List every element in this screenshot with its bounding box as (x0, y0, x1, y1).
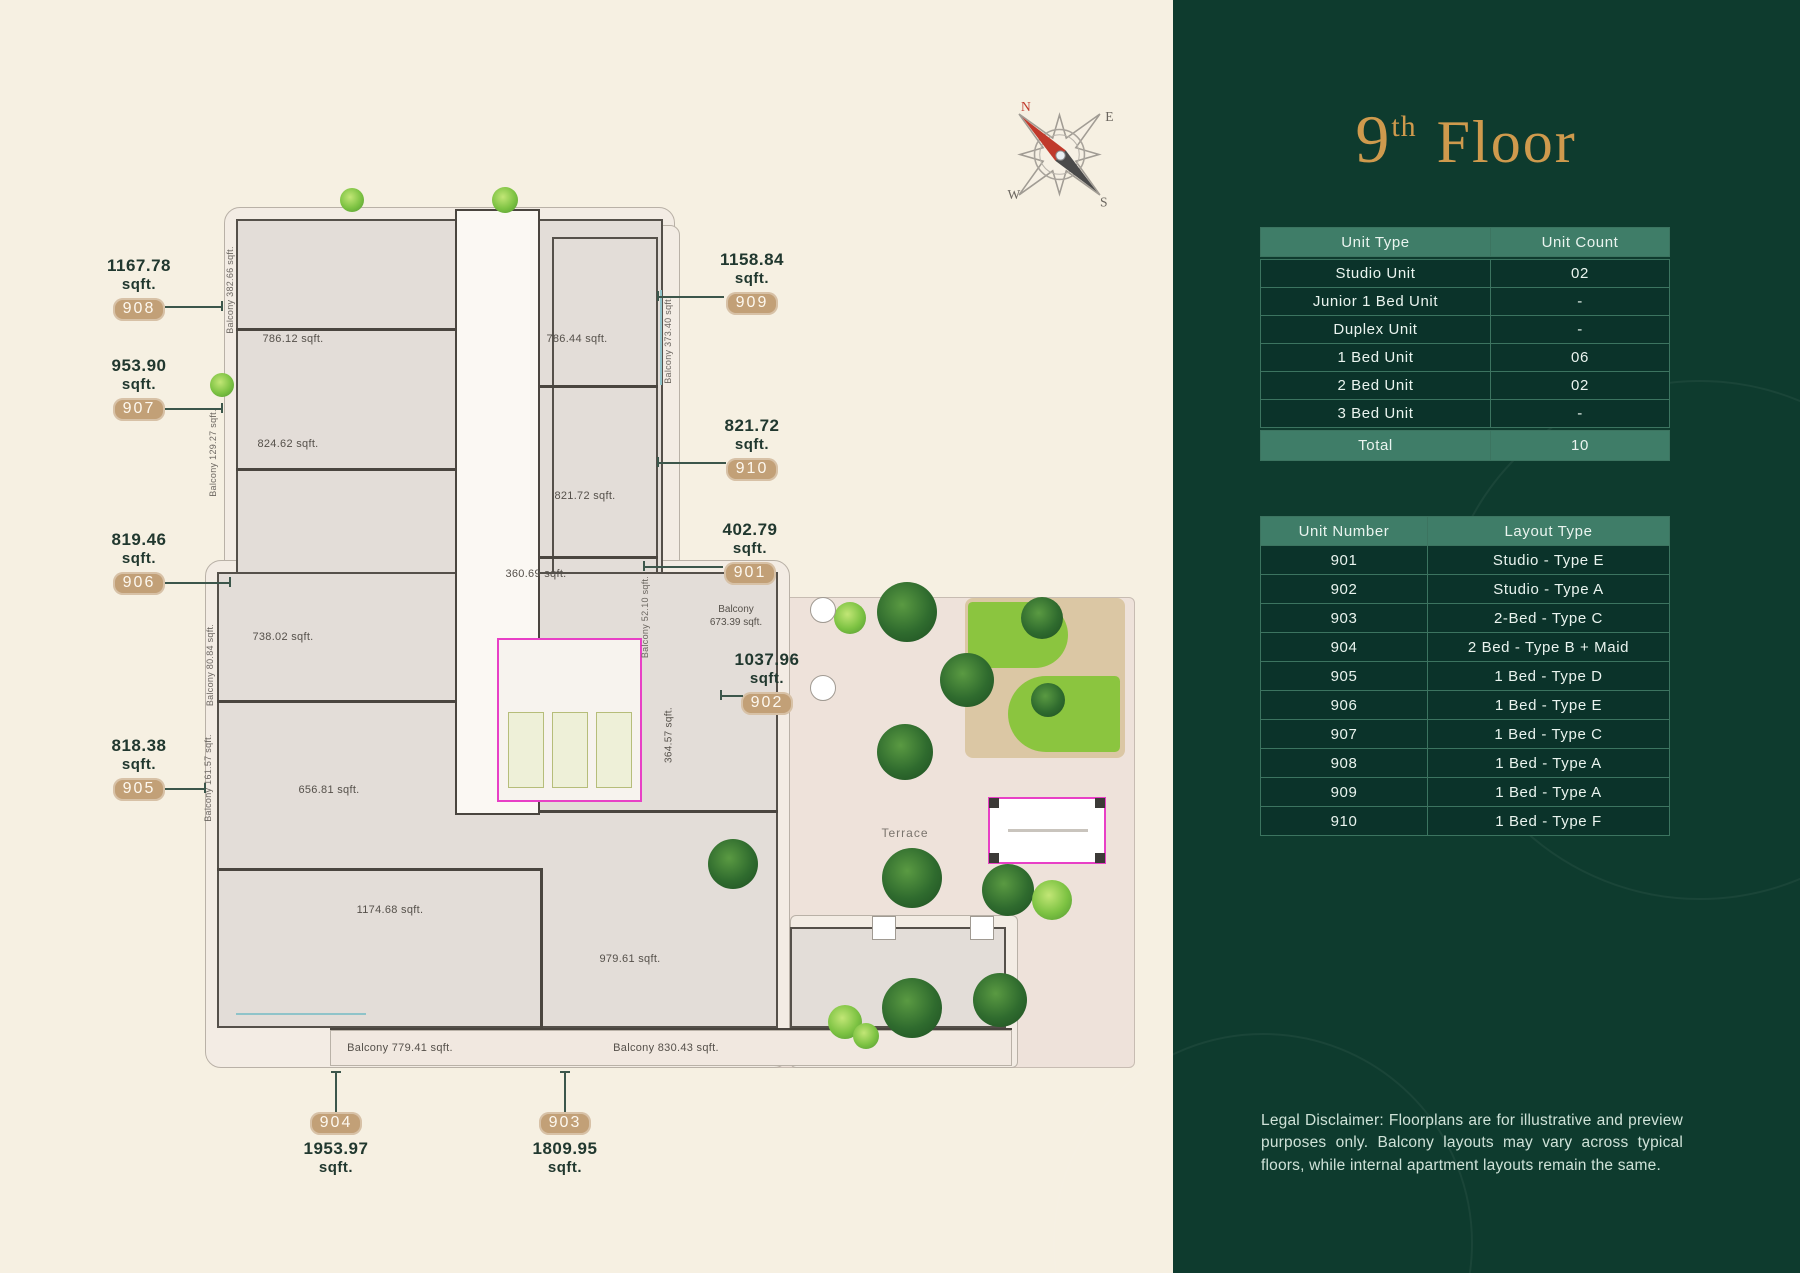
unit-area-label: 360.69 sqft. (505, 568, 566, 580)
callout-area: 1167.78 (77, 256, 201, 276)
leader-tick (204, 783, 206, 793)
leader-line (165, 788, 205, 790)
balcony-label: Balcony 673.39 sqft. (710, 603, 762, 629)
table-row: 3 Bed Unit - (1261, 400, 1671, 428)
unit-badge: 910 (726, 458, 779, 481)
layout-type-cell: Studio - Type E (1427, 545, 1670, 575)
leader-line (335, 1072, 337, 1112)
leader-tick (657, 291, 659, 301)
floorplan-page: 786.12 sqft. 786.44 sqft. 824.62 sqft. 8… (0, 0, 1800, 1273)
leader-tick (560, 1071, 570, 1073)
bush (492, 187, 518, 213)
table-header-row: Unit Number Layout Type (1261, 517, 1671, 546)
table-row: Studio Unit 02 (1261, 260, 1671, 288)
wall (540, 556, 658, 559)
unit-number-cell: 902 (1260, 574, 1428, 604)
unit-area-label: 786.44 sqft. (546, 333, 607, 345)
unit-type-cell: Studio Unit (1260, 259, 1491, 288)
layout-type-cell: 2 Bed - Type B + Maid (1427, 632, 1670, 662)
page-title: 9th Floor (1261, 100, 1671, 179)
wall (217, 700, 455, 703)
compass-west: W (1007, 187, 1020, 202)
table-line (1008, 829, 1088, 832)
callout-area: 1953.97 (274, 1139, 398, 1159)
unit-number-cell: 906 (1260, 690, 1428, 720)
callout-area: 1809.95 (503, 1139, 627, 1159)
balcony-glass (660, 290, 662, 385)
unit-area-label: 824.62 sqft. (257, 438, 318, 450)
core-bay (552, 712, 588, 788)
info-sidebar: 9th Floor Unit Type Unit Count Studio Un… (1173, 0, 1800, 1273)
unit-area-label: 786.12 sqft. (262, 333, 323, 345)
callout-sqft: sqft. (77, 276, 201, 293)
compass-south: S (1100, 194, 1108, 209)
callout-sqft: sqft. (77, 756, 201, 773)
unit-callout-902: 1037.96 sqft. 902 (705, 650, 829, 715)
table-row: 905 1 Bed - Type D (1261, 662, 1671, 691)
unit-badge: 905 (113, 778, 166, 801)
unit-count-cell: - (1490, 315, 1670, 344)
table-row: 908 1 Bed - Type A (1261, 749, 1671, 778)
unit-badge: 901 (724, 562, 777, 585)
unit-callout-904: 904 1953.97 sqft. (274, 1112, 398, 1176)
balcony-label: Balcony 52.10 sqft. (640, 576, 650, 658)
unit-badge: 909 (726, 292, 779, 315)
unit-area-label: 1174.68 sqft. (357, 904, 424, 916)
total-value-cell: 10 (1490, 430, 1670, 461)
table-row: 1 Bed Unit 06 (1261, 344, 1671, 372)
tree (882, 978, 942, 1038)
leader-line (165, 582, 230, 584)
compass-north: N (1021, 99, 1031, 114)
unit-area-label: 364.57 sqft. (664, 707, 675, 763)
unit-badge: 904 (310, 1112, 363, 1135)
layout-type-cell: 2-Bed - Type C (1427, 603, 1670, 633)
unit-area-label: 738.02 sqft. (252, 631, 313, 643)
layout-type-cell: 1 Bed - Type C (1427, 719, 1670, 749)
table-row: Duplex Unit - (1261, 316, 1671, 344)
table-body: 901 Studio - Type E 902 Studio - Type A … (1261, 546, 1671, 836)
unit-callout-910: 821.72 sqft. 910 (690, 416, 814, 481)
layout-type-cell: 1 Bed - Type A (1427, 777, 1670, 807)
tree (1021, 597, 1063, 639)
header-cell: Layout Type (1427, 516, 1670, 546)
layout-type-cell: 1 Bed - Type F (1427, 806, 1670, 836)
callout-area: 819.46 (77, 530, 201, 550)
callout-area: 1037.96 (705, 650, 829, 670)
balcony-label: Balcony 373.40 sqft. (663, 296, 673, 384)
unit-number-cell: 908 (1260, 748, 1428, 778)
column (989, 798, 999, 808)
balcony-label: Balcony 161.57 sqft. (203, 734, 213, 822)
tree (1031, 683, 1065, 717)
unit-type-cell: Duplex Unit (1260, 315, 1491, 344)
outdoor-table (970, 916, 994, 940)
table-row: 910 1 Bed - Type F (1261, 807, 1671, 836)
balcony-label-line: Balcony (718, 604, 754, 615)
layout-type-cell: 1 Bed - Type E (1427, 690, 1670, 720)
bush (1032, 880, 1072, 920)
unit-type-cell: 3 Bed Unit (1260, 399, 1491, 428)
unit-callout-909: 1158.84 sqft. 909 (690, 250, 814, 315)
callout-area: 818.38 (77, 736, 201, 756)
table-header-row: Unit Type Unit Count (1261, 228, 1671, 257)
table-body: Studio Unit 02 Junior 1 Bed Unit - Duple… (1261, 260, 1671, 428)
tree (708, 839, 758, 889)
unit-count-cell: - (1490, 287, 1670, 316)
bush (834, 602, 866, 634)
unit-type-cell: 2 Bed Unit (1260, 371, 1491, 400)
unit-type-cell: Junior 1 Bed Unit (1260, 287, 1491, 316)
floor-word: Floor (1437, 109, 1577, 175)
table-row: 907 1 Bed - Type C (1261, 720, 1671, 749)
table-row: 909 1 Bed - Type A (1261, 778, 1671, 807)
leader-line (644, 566, 723, 568)
callout-area: 1158.84 (690, 250, 814, 270)
bush (340, 188, 364, 212)
leader-line (721, 695, 743, 697)
leader-line (165, 408, 222, 410)
bush (210, 373, 234, 397)
table-row: 902 Studio - Type A (1261, 575, 1671, 604)
callout-sqft: sqft. (705, 670, 829, 687)
column (1095, 853, 1105, 863)
table-row: 904 2 Bed - Type B + Maid (1261, 633, 1671, 662)
core-bay (596, 712, 632, 788)
floor-number: 9 (1355, 101, 1391, 177)
wall (236, 328, 455, 331)
unit-type-cell: 1 Bed Unit (1260, 343, 1491, 372)
balcony-label: Balcony 382.66 sqft. (225, 246, 235, 334)
balcony-label: Balcony 129.27 sqft. (208, 409, 218, 497)
unit-callout-903: 903 1809.95 sqft. (503, 1112, 627, 1176)
unit-callout-905: 818.38 sqft. 905 (77, 736, 201, 801)
unit-badge: 902 (741, 692, 794, 715)
leader-tick (643, 561, 645, 571)
outdoor-table (872, 916, 896, 940)
unit-badge: 907 (113, 398, 166, 421)
tree (982, 864, 1034, 916)
legal-disclaimer: Legal Disclaimer: Floorplans are for ill… (1261, 1110, 1683, 1177)
header-cell: Unit Count (1490, 227, 1670, 257)
tree (973, 973, 1027, 1027)
callout-area: 953.90 (77, 356, 201, 376)
floor-ordinal: th (1391, 110, 1416, 143)
table-row: Junior 1 Bed Unit - (1261, 288, 1671, 316)
terrace-structure (988, 797, 1106, 864)
unit-count-cell: 02 (1490, 259, 1670, 288)
tree (940, 653, 994, 707)
leader-tick (229, 577, 231, 587)
leader-line (564, 1072, 566, 1112)
wall (540, 810, 778, 813)
unit-callout-906: 819.46 sqft. 906 (77, 530, 201, 595)
unit-area-label: 656.81 sqft. (298, 784, 359, 796)
table-total-row: Total 10 (1261, 431, 1671, 461)
callout-sqft: sqft. (274, 1159, 398, 1176)
callout-area: 821.72 (690, 416, 814, 436)
tree (877, 724, 933, 780)
balcony-label-line: 673.39 sqft. (710, 617, 762, 628)
outdoor-table (810, 597, 836, 623)
table-row: 903 2-Bed - Type C (1261, 604, 1671, 633)
unit-area-label: 979.61 sqft. (599, 953, 660, 965)
table-row: 906 1 Bed - Type E (1261, 691, 1671, 720)
layout-type-cell: 1 Bed - Type D (1427, 661, 1670, 691)
column (989, 853, 999, 863)
compass-east: E (1105, 109, 1113, 124)
header-cell: Unit Number (1260, 516, 1428, 546)
leader-tick (720, 690, 722, 700)
wall (217, 868, 540, 871)
terrace-label: Terrace (881, 826, 928, 840)
balcony-label: Balcony 80.84 sqft. (205, 624, 215, 706)
unit-callout-901: 402.79 sqft. 901 (688, 520, 812, 585)
leader-line (165, 306, 222, 308)
table-row: 901 Studio - Type E (1261, 546, 1671, 575)
core-bay (508, 712, 544, 788)
column (1095, 798, 1105, 808)
callout-sqft: sqft. (690, 436, 814, 453)
wall (540, 868, 543, 1028)
header-cell: Unit Type (1260, 227, 1491, 257)
unit-count-cell: - (1490, 399, 1670, 428)
unit-summary-table: Unit Type Unit Count Studio Unit 02 Juni… (1261, 228, 1671, 461)
leader-tick (221, 301, 223, 311)
units-interior (552, 237, 658, 588)
callout-sqft: sqft. (77, 550, 201, 567)
leader-tick (221, 403, 223, 413)
callout-sqft: sqft. (690, 270, 814, 287)
compass-icon: N E S W (995, 90, 1125, 220)
leader-line (658, 296, 724, 298)
callout-sqft: sqft. (77, 376, 201, 393)
unit-callout-908: 1167.78 sqft. 908 (77, 256, 201, 321)
tree (877, 582, 937, 642)
leader-tick (331, 1071, 341, 1073)
grass-patch (1008, 676, 1120, 752)
leader-tick (657, 457, 659, 467)
unit-badge: 903 (539, 1112, 592, 1135)
unit-layout-table: Unit Number Layout Type 901 Studio - Typ… (1261, 517, 1671, 836)
callout-sqft: sqft. (688, 540, 812, 557)
unit-number-cell: 903 (1260, 603, 1428, 633)
unit-number-cell: 901 (1260, 545, 1428, 575)
callout-sqft: sqft. (503, 1159, 627, 1176)
unit-badge: 908 (113, 298, 166, 321)
table-row: 2 Bed Unit 02 (1261, 372, 1671, 400)
balcony-label: Balcony 830.43 sqft. (613, 1042, 719, 1054)
unit-badge: 906 (113, 572, 166, 595)
unit-number-cell: 907 (1260, 719, 1428, 749)
wall (540, 385, 658, 388)
bush (853, 1023, 879, 1049)
unit-number-cell: 905 (1260, 661, 1428, 691)
wall (236, 468, 455, 471)
callout-area: 402.79 (688, 520, 812, 540)
unit-count-cell: 06 (1490, 343, 1670, 372)
leader-line (658, 462, 726, 464)
balcony-glass (236, 1013, 366, 1015)
layout-type-cell: Studio - Type A (1427, 574, 1670, 604)
unit-number-cell: 909 (1260, 777, 1428, 807)
layout-type-cell: 1 Bed - Type A (1427, 748, 1670, 778)
total-label-cell: Total (1260, 430, 1491, 461)
unit-area-label: 821.72 sqft. (554, 490, 615, 502)
unit-number-cell: 910 (1260, 806, 1428, 836)
unit-callout-907: 953.90 sqft. 907 (77, 356, 201, 421)
tree (882, 848, 942, 908)
balcony-label: Balcony 779.41 sqft. (347, 1042, 453, 1054)
unit-count-cell: 02 (1490, 371, 1670, 400)
unit-number-cell: 904 (1260, 632, 1428, 662)
